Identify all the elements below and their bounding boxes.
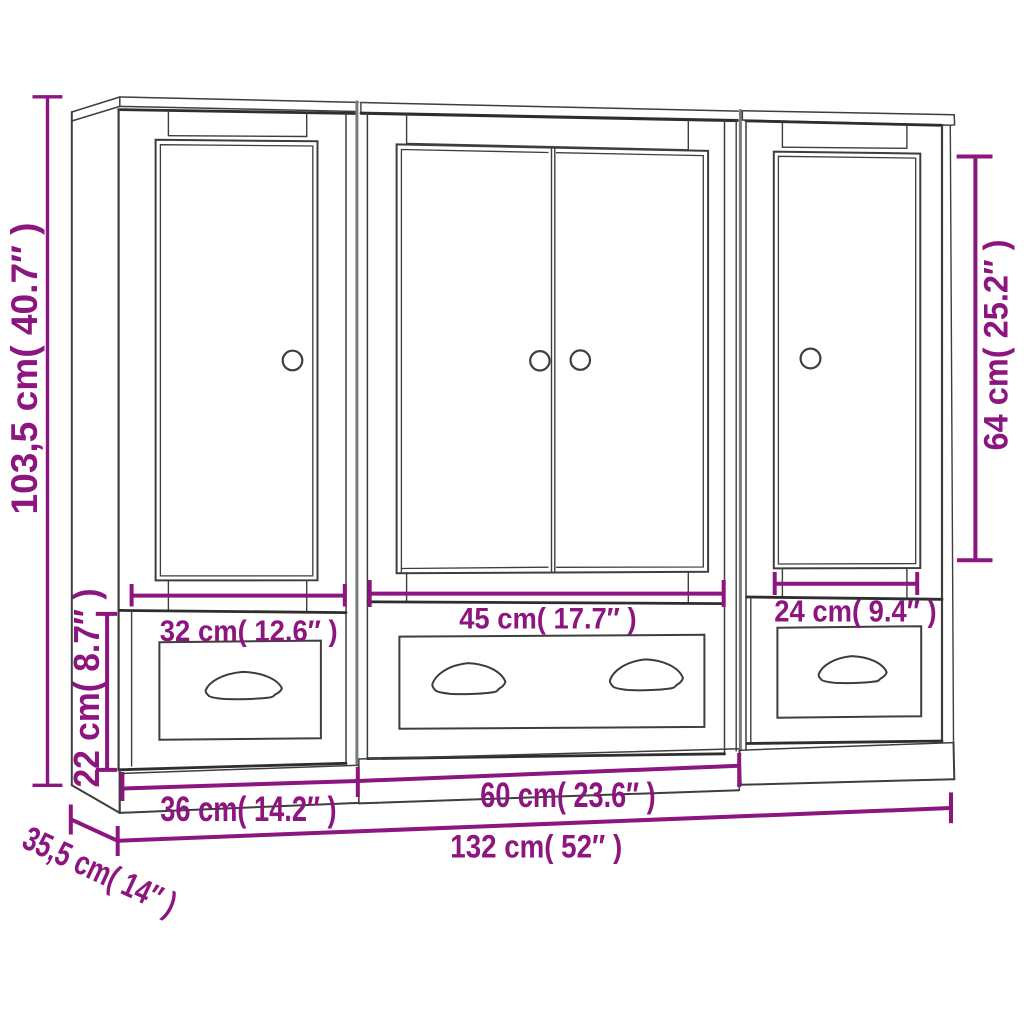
svg-text:103,5 cm( 40.7″ ): 103,5 cm( 40.7″ ) — [3, 223, 45, 515]
svg-text:60 cm( 23.6″ ): 60 cm( 23.6″ ) — [480, 776, 655, 815]
svg-text:24 cm( 9.4″ ): 24 cm( 9.4″ ) — [774, 595, 936, 629]
svg-text:36 cm( 14.2″ ): 36 cm( 14.2″ ) — [160, 790, 336, 829]
svg-text:22 cm( 8.7″ ): 22 cm( 8.7″ ) — [66, 589, 107, 788]
svg-text:64 cm( 25.2″ ): 64 cm( 25.2″ ) — [978, 240, 1016, 451]
svg-text:45 cm( 17.7″ ): 45 cm( 17.7″ ) — [459, 603, 636, 636]
svg-text:132 cm( 52″ ): 132 cm( 52″ ) — [450, 829, 622, 865]
svg-text:32 cm( 12.6″ ): 32 cm( 12.6″ ) — [160, 615, 338, 648]
